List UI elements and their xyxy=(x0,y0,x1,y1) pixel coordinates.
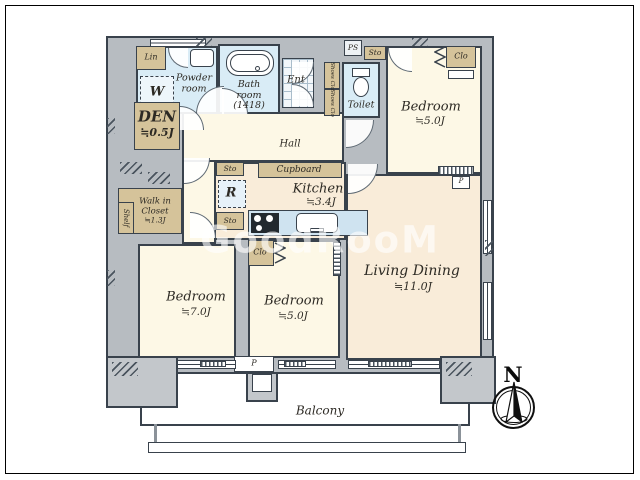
pipe-space-label: PS xyxy=(348,44,358,52)
window-hatch xyxy=(284,361,306,367)
wall-hatch xyxy=(120,162,142,174)
wall-hatch xyxy=(107,118,115,134)
bedroom-top-label: Bedroom xyxy=(401,101,461,116)
wall-hatch xyxy=(107,270,115,286)
entrance-label: Ent xyxy=(287,74,305,85)
bedroom-mid-area: ≒5.0J xyxy=(278,311,308,323)
storage-label: Sto xyxy=(224,165,237,173)
pillar-label: P xyxy=(459,178,464,186)
kitchen-area: ≒3.4J xyxy=(306,197,336,209)
shoes-closet-label: Shoes Clo xyxy=(329,62,335,90)
balcony-rail-post xyxy=(154,424,157,442)
pillar-label: P xyxy=(251,360,256,369)
balcony-railing xyxy=(148,442,466,453)
storage-label: Sto xyxy=(369,49,382,57)
room-hall xyxy=(182,112,344,162)
toilet-label: Toilet xyxy=(348,101,375,112)
cupboard-label: Cupboard xyxy=(276,165,321,175)
washbasin-icon xyxy=(190,49,214,67)
window-hatch xyxy=(368,361,412,367)
closet-label: Clo xyxy=(454,53,468,62)
bedroom-left-label: Bedroom xyxy=(166,291,226,306)
hall-label: Hall xyxy=(279,138,300,149)
wall-hatch xyxy=(446,362,472,376)
shelf-label: Shelf xyxy=(122,209,130,227)
balcony-area xyxy=(140,372,470,426)
balcony-indent-notch xyxy=(252,374,272,392)
bedroom-mid-label: Bedroom xyxy=(264,295,324,310)
folding-door-icon xyxy=(434,46,446,68)
window xyxy=(483,282,492,340)
balcony-rail-post xyxy=(458,424,461,442)
walk-in-closet-label: Walk in Closet ≒1.3J xyxy=(139,197,171,224)
bathtub-inner xyxy=(230,54,270,72)
toilet-bowl-icon xyxy=(353,77,369,97)
toilet-tank-icon xyxy=(352,68,370,77)
vent-hatch xyxy=(438,166,474,175)
den-area: ≒0.5J xyxy=(140,127,174,139)
watermark: GoodRooM xyxy=(200,219,440,260)
window-hatch xyxy=(200,361,226,367)
balcony-label: Balcony xyxy=(296,404,344,417)
washer-label: W xyxy=(150,86,165,101)
kitchen-label: Kitchen xyxy=(293,183,344,198)
wall-hatch xyxy=(148,172,170,184)
wall-hatch xyxy=(196,38,212,46)
bedroom-left-area: ≒7.0J xyxy=(181,307,211,319)
wall-hatch xyxy=(485,240,493,256)
bath-drain-icon xyxy=(255,66,260,71)
wall-hatch xyxy=(412,38,428,46)
living-dining-area: ≒11.0J xyxy=(394,281,432,293)
linen-label: Lin xyxy=(144,54,157,63)
compass-needle-icon xyxy=(494,378,534,432)
refrigerator-label: R xyxy=(226,187,237,202)
wall-hatch xyxy=(112,362,138,376)
shoes-closet-label: Shoes Clo xyxy=(329,89,335,117)
living-dining-label: Living Dining xyxy=(364,264,460,280)
counter-shelf xyxy=(448,70,474,79)
powder-room-label: Powder room xyxy=(176,73,212,94)
bath-room-label: Bath room (1418) xyxy=(233,80,265,112)
den-label: DEN xyxy=(138,109,176,126)
floorplan-image: { "floorplan": { "watermark": "GoodRooM"… xyxy=(0,0,640,480)
bedroom-top-area: ≒5.0J xyxy=(415,116,445,128)
